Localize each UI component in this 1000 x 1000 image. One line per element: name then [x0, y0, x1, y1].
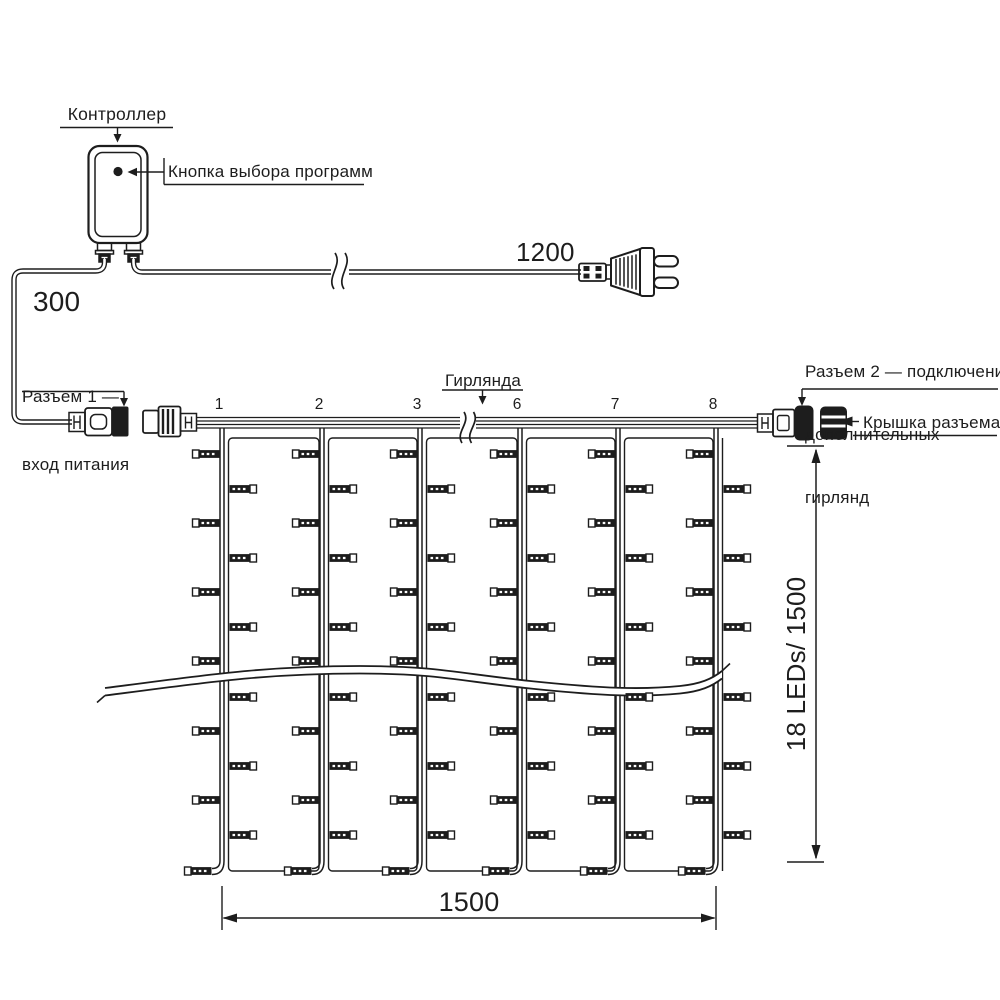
controller-leader	[60, 128, 173, 143]
led-capsule	[391, 450, 418, 458]
led-capsule	[330, 831, 357, 839]
led-capsule	[193, 796, 220, 804]
led-capsule	[428, 554, 455, 562]
led-capsule	[230, 762, 257, 770]
strand-drop	[608, 428, 713, 875]
strand-number: 3	[413, 396, 422, 414]
led-capsule	[491, 519, 518, 527]
curtain-height-dimension-label: 18 LEDs/ 1500	[780, 577, 813, 752]
led-capsule	[528, 485, 555, 493]
garland-bundle	[197, 418, 758, 429]
led-capsule	[581, 867, 608, 875]
strand-number: 6	[513, 396, 522, 414]
led-capsule	[330, 762, 357, 770]
plug-cord	[134, 259, 582, 272]
led-capsule	[428, 762, 455, 770]
led-capsule	[589, 450, 616, 458]
led-capsule	[428, 831, 455, 839]
led-capsule	[428, 485, 455, 493]
led-capsule	[193, 657, 220, 665]
led-capsule	[724, 762, 751, 770]
program-button-label: Кнопка выбора программ	[168, 161, 373, 182]
led-capsule	[391, 657, 418, 665]
led-capsule	[626, 762, 653, 770]
connector1-label-line1: Разъем 1 —	[22, 386, 129, 409]
led-capsule	[391, 519, 418, 527]
connector1-label-line2: вход питания	[22, 454, 129, 477]
led-capsule	[330, 485, 357, 493]
led-capsule	[330, 693, 357, 701]
strand-number: 1	[215, 396, 224, 414]
led-capsule	[687, 588, 714, 596]
led-capsule	[589, 657, 616, 665]
led-capsule	[491, 727, 518, 735]
led-capsule	[687, 657, 714, 665]
led-capsule	[428, 623, 455, 631]
led-capsule	[589, 588, 616, 596]
led-capsule	[589, 727, 616, 735]
led-capsule	[724, 831, 751, 839]
strand-number: 2	[315, 396, 324, 414]
led-capsule	[428, 693, 455, 701]
led-capsule	[330, 554, 357, 562]
garland-leader	[442, 390, 523, 405]
led-capsule	[293, 727, 320, 735]
connector-cap-label: Крышка разъема	[863, 412, 1000, 433]
led-capsule	[626, 623, 653, 631]
connector2-label-line3: гирлянд	[805, 487, 1000, 508]
led-capsule	[491, 588, 518, 596]
led-capsule	[193, 519, 220, 527]
led-capsule	[293, 588, 320, 596]
strand-drop	[212, 428, 319, 875]
led-capsule	[724, 554, 751, 562]
led-capsule	[687, 450, 714, 458]
led-capsule	[293, 450, 320, 458]
led-capsule	[687, 727, 714, 735]
led-capsule	[589, 519, 616, 527]
led-capsule	[528, 831, 555, 839]
led-capsule	[724, 693, 751, 701]
led-capsule	[626, 554, 653, 562]
strand-number: 7	[611, 396, 620, 414]
led-capsule	[383, 867, 410, 875]
program-button-dot	[113, 167, 122, 176]
led-capsule	[626, 831, 653, 839]
curtain-width-dimension-label: 1500	[419, 886, 519, 920]
led-capsule	[293, 657, 320, 665]
connector1-label: Разъем 1 — вход питания	[22, 341, 129, 499]
led-capsule	[626, 485, 653, 493]
controller-box	[89, 146, 148, 243]
led-capsule	[724, 623, 751, 631]
cable-length-1200: 1200	[516, 236, 575, 269]
led-capsule	[391, 727, 418, 735]
cable-length-300: 300	[33, 284, 80, 319]
strand-drop	[510, 428, 615, 875]
led-capsule	[230, 485, 257, 493]
led-capsule	[193, 450, 220, 458]
strand-drop	[706, 428, 723, 875]
led-capsule	[528, 762, 555, 770]
led-curtain-wires	[212, 428, 723, 875]
led-capsules	[185, 450, 751, 875]
led-capsule	[330, 623, 357, 631]
led-capsule	[483, 867, 510, 875]
led-capsule	[230, 831, 257, 839]
led-capsule	[293, 519, 320, 527]
strand-drop	[410, 428, 517, 875]
led-capsule	[230, 693, 257, 701]
connector1-female	[143, 407, 197, 437]
led-capsule	[528, 623, 555, 631]
led-capsule	[230, 623, 257, 631]
power-plug-icon	[579, 248, 678, 296]
led-capsule	[293, 796, 320, 804]
led-capsule	[687, 519, 714, 527]
led-capsule	[391, 588, 418, 596]
led-capsule	[230, 554, 257, 562]
led-capsule	[491, 657, 518, 665]
led-capsule	[589, 796, 616, 804]
garland-label: Гирлянда	[442, 370, 524, 391]
led-capsule	[679, 867, 706, 875]
led-capsule	[626, 693, 653, 701]
cord-break-symbol	[331, 253, 349, 289]
led-capsule	[391, 796, 418, 804]
led-capsule	[528, 693, 555, 701]
led-capsule	[724, 485, 751, 493]
controller-label: Контроллер	[58, 104, 176, 126]
led-capsule	[193, 588, 220, 596]
garland-wiring-diagram: Контроллер Кнопка выбора программ 300 12…	[0, 0, 1000, 1000]
led-capsule	[491, 796, 518, 804]
led-capsule	[528, 554, 555, 562]
led-capsule	[491, 450, 518, 458]
strand-drop	[312, 428, 417, 875]
strand-number: 8	[709, 396, 718, 414]
led-capsule	[193, 727, 220, 735]
connector2-label-line1: Разъем 2 — подключение	[805, 361, 1000, 382]
led-capsule	[285, 867, 312, 875]
led-capsule	[185, 867, 212, 875]
led-capsule	[687, 796, 714, 804]
